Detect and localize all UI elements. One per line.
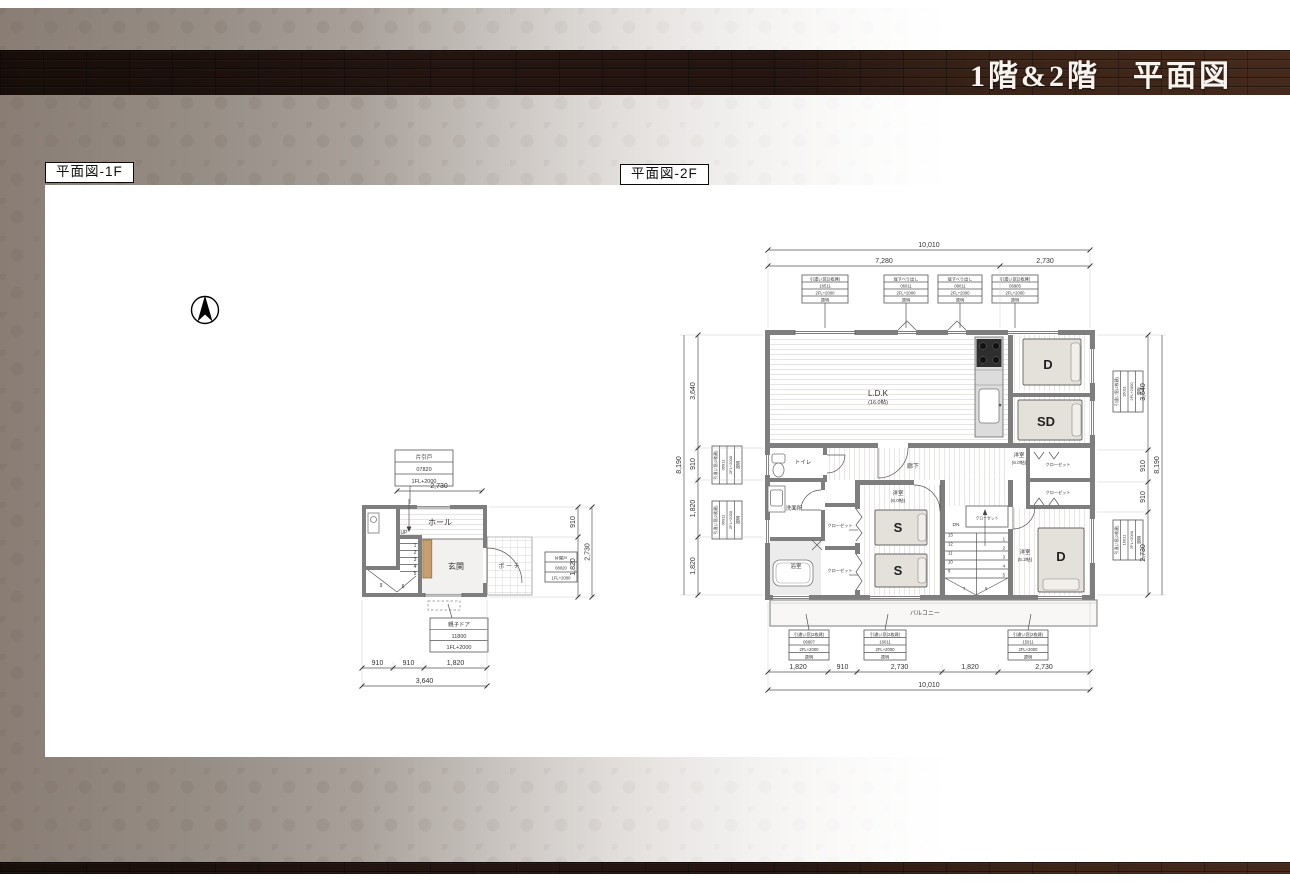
north-arrow-icon <box>192 296 219 324</box>
svg-text:1,820: 1,820 <box>789 664 807 671</box>
svg-text:片引戸: 片引戸 <box>416 453 433 461</box>
svg-text:2FL+2000: 2FL+2000 <box>1006 290 1026 295</box>
svg-text:16011: 16011 <box>1122 534 1127 546</box>
svg-text:1,820: 1,820 <box>690 557 697 575</box>
bed-double: D <box>1023 339 1081 385</box>
svg-text:S: S <box>894 563 903 578</box>
svg-text:2,730: 2,730 <box>1035 664 1053 671</box>
room-label-bedroom-s: 洋室 <box>892 489 904 497</box>
bed-semidouble: SD <box>1018 400 1082 440</box>
svg-text:1,820: 1,820 <box>447 660 465 667</box>
svg-text:透明: 透明 <box>1011 296 1019 303</box>
floor-plan-1f: 1 2 3 4 5 UP 9 6 ホール 玄関 ポ ー チ 片引戸 07820 … <box>168 278 638 698</box>
footer-bar <box>0 862 1290 874</box>
bed-double-2: D <box>1038 528 1084 592</box>
svg-text:縦すべり出し: 縦すべり出し <box>894 275 919 282</box>
svg-text:10,010: 10,010 <box>918 242 940 249</box>
svg-text:透明: 透明 <box>735 516 741 524</box>
svg-text:6: 6 <box>402 584 405 590</box>
svg-text:4: 4 <box>1003 564 1006 569</box>
svg-text:16511: 16511 <box>819 283 831 288</box>
svg-text:引違い窓(2枚建): 引違い窓(2枚建) <box>1113 525 1119 555</box>
svg-text:06011: 06011 <box>954 283 966 288</box>
svg-text:クローゼット: クローゼット <box>1045 461 1070 468</box>
svg-text:引違い窓(2枚建): 引違い窓(2枚建) <box>712 505 718 535</box>
svg-text:15011: 15011 <box>1022 640 1034 645</box>
svg-text:2FL+2000: 2FL+2000 <box>1019 647 1039 652</box>
svg-text:1,820: 1,820 <box>690 500 697 518</box>
room-label-bedroom-dsd: 洋室 <box>1013 451 1025 459</box>
svg-text:5: 5 <box>1003 573 1006 578</box>
svg-text:2,730: 2,730 <box>585 543 592 561</box>
f2-spec-right-2: 引違い窓(2枚建) 16011 2FL+2000 透明 <box>1113 520 1143 560</box>
plan-1f-tag: 平面図-1F <box>45 162 134 183</box>
svg-text:引違い窓(2枚建): 引違い窓(2枚建) <box>810 275 841 282</box>
svg-text:D: D <box>1043 357 1052 372</box>
svg-text:(5.2帖): (5.2帖) <box>1018 556 1033 563</box>
svg-text:4: 4 <box>414 564 417 570</box>
svg-text:2FL+2000: 2FL+2000 <box>800 647 820 652</box>
svg-text:親子ドア: 親子ドア <box>448 621 471 629</box>
svg-text:透明: 透明 <box>1136 536 1142 544</box>
svg-text:引違い窓(2枚建): 引違い窓(2枚建) <box>1000 275 1031 282</box>
svg-text:クローゼット: クローゼット <box>976 516 999 521</box>
svg-text:引違い窓(2枚建): 引違い窓(2枚建) <box>1113 376 1119 406</box>
svg-text:透明: 透明 <box>805 654 813 661</box>
svg-text:透明: 透明 <box>902 296 910 303</box>
svg-text:06907: 06907 <box>803 640 815 645</box>
svg-text:3,640: 3,640 <box>416 678 434 685</box>
svg-text:クローゼット: クローゼット <box>827 567 852 574</box>
f2-spec-top-1: 引違い窓(2枚建) 16511 2FL+2000 透明 <box>802 275 848 328</box>
svg-text:2FL+2000: 2FL+2000 <box>897 290 917 295</box>
f2-spec-top-3: 縦すべり出し 06011 2FL+2000 透明 <box>938 275 982 328</box>
svg-text:クローゼット: クローゼット <box>827 522 852 529</box>
svg-text:910: 910 <box>1140 460 1147 472</box>
svg-text:910: 910 <box>372 660 384 667</box>
room-label-corridor: 廊下 <box>907 462 919 470</box>
svg-text:13: 13 <box>948 533 953 538</box>
svg-text:910: 910 <box>403 660 415 667</box>
floor-plan-2f: D SD S S D クローゼット DN 13 12 11 10 9 1 2 3… <box>655 228 1200 704</box>
room-label-genkan: 玄関 <box>448 561 464 571</box>
f1-spec-door: 親子ドア 11800 1FL+2000 <box>430 604 488 652</box>
svg-text:2FL+2000: 2FL+2000 <box>1129 382 1134 401</box>
plan-2f-tag: 平面図-2F <box>620 164 709 185</box>
svg-text:2FL+2000: 2FL+2000 <box>728 455 733 474</box>
svg-text:透明: 透明 <box>735 461 741 469</box>
svg-text:S: S <box>894 520 903 535</box>
svg-text:透明: 透明 <box>956 296 964 303</box>
svg-text:06911: 06911 <box>721 514 726 526</box>
svg-text:07820: 07820 <box>416 467 431 473</box>
svg-text:引違い窓(2枚建): 引違い窓(2枚建) <box>1013 631 1044 638</box>
f2-spec-left-2: 引違い窓(2枚建) 06911 2FL+2000 透明 <box>712 501 742 539</box>
svg-text:1,820: 1,820 <box>961 664 979 671</box>
svg-text:1: 1 <box>414 543 417 549</box>
svg-text:910: 910 <box>690 458 697 470</box>
svg-text:2,730: 2,730 <box>430 483 448 490</box>
room-label-ldk: L.D.K <box>868 389 889 398</box>
room-label-bedroom-d: 洋室 <box>1019 548 1031 556</box>
svg-text:(6.0帖): (6.0帖) <box>1012 459 1027 466</box>
svg-text:910: 910 <box>1140 491 1147 503</box>
svg-text:16011: 16011 <box>1122 385 1127 397</box>
svg-text:7,280: 7,280 <box>875 258 893 265</box>
svg-text:2FL+2000: 2FL+2000 <box>951 290 971 295</box>
room-label-porch: ポ ー チ <box>498 562 519 570</box>
svg-text:8,190: 8,190 <box>676 456 683 474</box>
svg-text:引違い窓(2枚建): 引違い窓(2枚建) <box>712 450 718 480</box>
svg-text:透明: 透明 <box>881 654 889 661</box>
f2-kitchen <box>975 337 1003 437</box>
f2-spec-right-1: 引違い窓(2枚建) 16011 2FL+2000 透明 <box>1113 371 1143 412</box>
svg-text:引違い窓(2枚建): 引違い窓(2枚建) <box>870 631 901 638</box>
f1-water-heater <box>368 513 379 533</box>
svg-text:08020: 08020 <box>555 566 567 571</box>
svg-text:1: 1 <box>1003 537 1006 542</box>
f2-spec-top-2: 縦すべり出し 06011 2FL+2000 透明 <box>884 275 928 328</box>
page-title: 1階&2階 平面図 <box>970 51 1232 95</box>
svg-text:3: 3 <box>414 557 417 563</box>
svg-text:(6.0帖): (6.0帖) <box>891 497 906 504</box>
room-label-toilet: トイレ <box>795 460 812 466</box>
svg-text:2,730: 2,730 <box>1036 258 1054 265</box>
svg-text:UP: UP <box>401 530 409 536</box>
svg-text:片開戸: 片開戸 <box>555 555 568 562</box>
svg-text:06011: 06011 <box>900 283 912 288</box>
svg-text:910: 910 <box>570 516 577 528</box>
room-label-hall: ホール <box>428 518 452 527</box>
svg-text:2FL+2000: 2FL+2000 <box>876 647 896 652</box>
svg-text:10: 10 <box>948 560 953 565</box>
svg-text:2FL+2000: 2FL+2000 <box>816 290 836 295</box>
svg-text:1FL+2000: 1FL+2000 <box>552 576 572 581</box>
svg-text:2FL+2000: 2FL+2000 <box>1129 530 1134 549</box>
svg-text:透明: 透明 <box>821 296 829 303</box>
svg-text:SD: SD <box>1037 414 1055 429</box>
f2-balcony: バルコニー <box>770 600 1097 626</box>
f2-washbasin <box>768 486 785 512</box>
svg-text:2: 2 <box>414 550 417 556</box>
svg-text:06905: 06905 <box>1009 283 1021 288</box>
f2-stairs: クローゼット DN 13 12 11 10 9 1 2 3 4 5 7 6 <box>945 506 1008 595</box>
svg-text:DN: DN <box>953 522 960 528</box>
bed-single-1: S <box>875 510 927 545</box>
svg-text:縦すべり出し: 縦すべり出し <box>948 275 973 282</box>
svg-text:910: 910 <box>837 664 849 671</box>
f2-spec-left-1: 引違い窓(2枚建) 06911 2FL+2000 透明 <box>712 446 742 484</box>
f2-spec-top-4: 引違い窓(2枚建) 06905 2FL+2000 透明 <box>992 275 1038 328</box>
svg-text:3,640: 3,640 <box>690 382 697 400</box>
f1-shoe-cabinet <box>423 540 432 578</box>
f2-toilet-fixture <box>772 454 785 477</box>
room-label-wash: 洗面所 <box>786 504 803 512</box>
svg-text:06911: 06911 <box>721 459 726 471</box>
svg-text:9: 9 <box>380 583 383 589</box>
svg-text:クローゼット: クローゼット <box>1045 489 1070 496</box>
svg-text:引違い窓(2枚建): 引違い窓(2枚建) <box>794 631 825 638</box>
svg-text:12: 12 <box>948 542 953 547</box>
room-label-ldk-size: (16.0帖) <box>868 398 888 406</box>
svg-text:11: 11 <box>948 551 953 556</box>
svg-text:3: 3 <box>1003 555 1006 560</box>
svg-text:8,190: 8,190 <box>1154 456 1161 474</box>
svg-text:1,820: 1,820 <box>570 558 577 576</box>
svg-text:16011: 16011 <box>879 640 891 645</box>
svg-text:2,730: 2,730 <box>1140 544 1147 562</box>
svg-text:透明: 透明 <box>1024 654 1032 661</box>
bed-single-2: S <box>875 554 927 587</box>
f1-spec-top: 片引戸 07820 1FL+2000 <box>395 450 453 504</box>
svg-text:7: 7 <box>963 586 966 591</box>
svg-text:2: 2 <box>1003 546 1006 551</box>
svg-text:11800: 11800 <box>452 634 467 640</box>
header-bar: 1階&2階 平面図 <box>0 50 1290 95</box>
svg-text:5: 5 <box>414 571 417 577</box>
svg-text:バルコニー: バルコニー <box>910 610 940 617</box>
svg-text:2,730: 2,730 <box>891 664 909 671</box>
svg-text:10,010: 10,010 <box>918 682 940 689</box>
svg-text:1FL+2000: 1FL+2000 <box>447 645 472 651</box>
room-label-bath: 浴室 <box>790 562 802 570</box>
svg-text:D: D <box>1056 549 1065 564</box>
svg-text:3,640: 3,640 <box>1140 383 1147 401</box>
svg-text:2FL+2000: 2FL+2000 <box>728 510 733 529</box>
